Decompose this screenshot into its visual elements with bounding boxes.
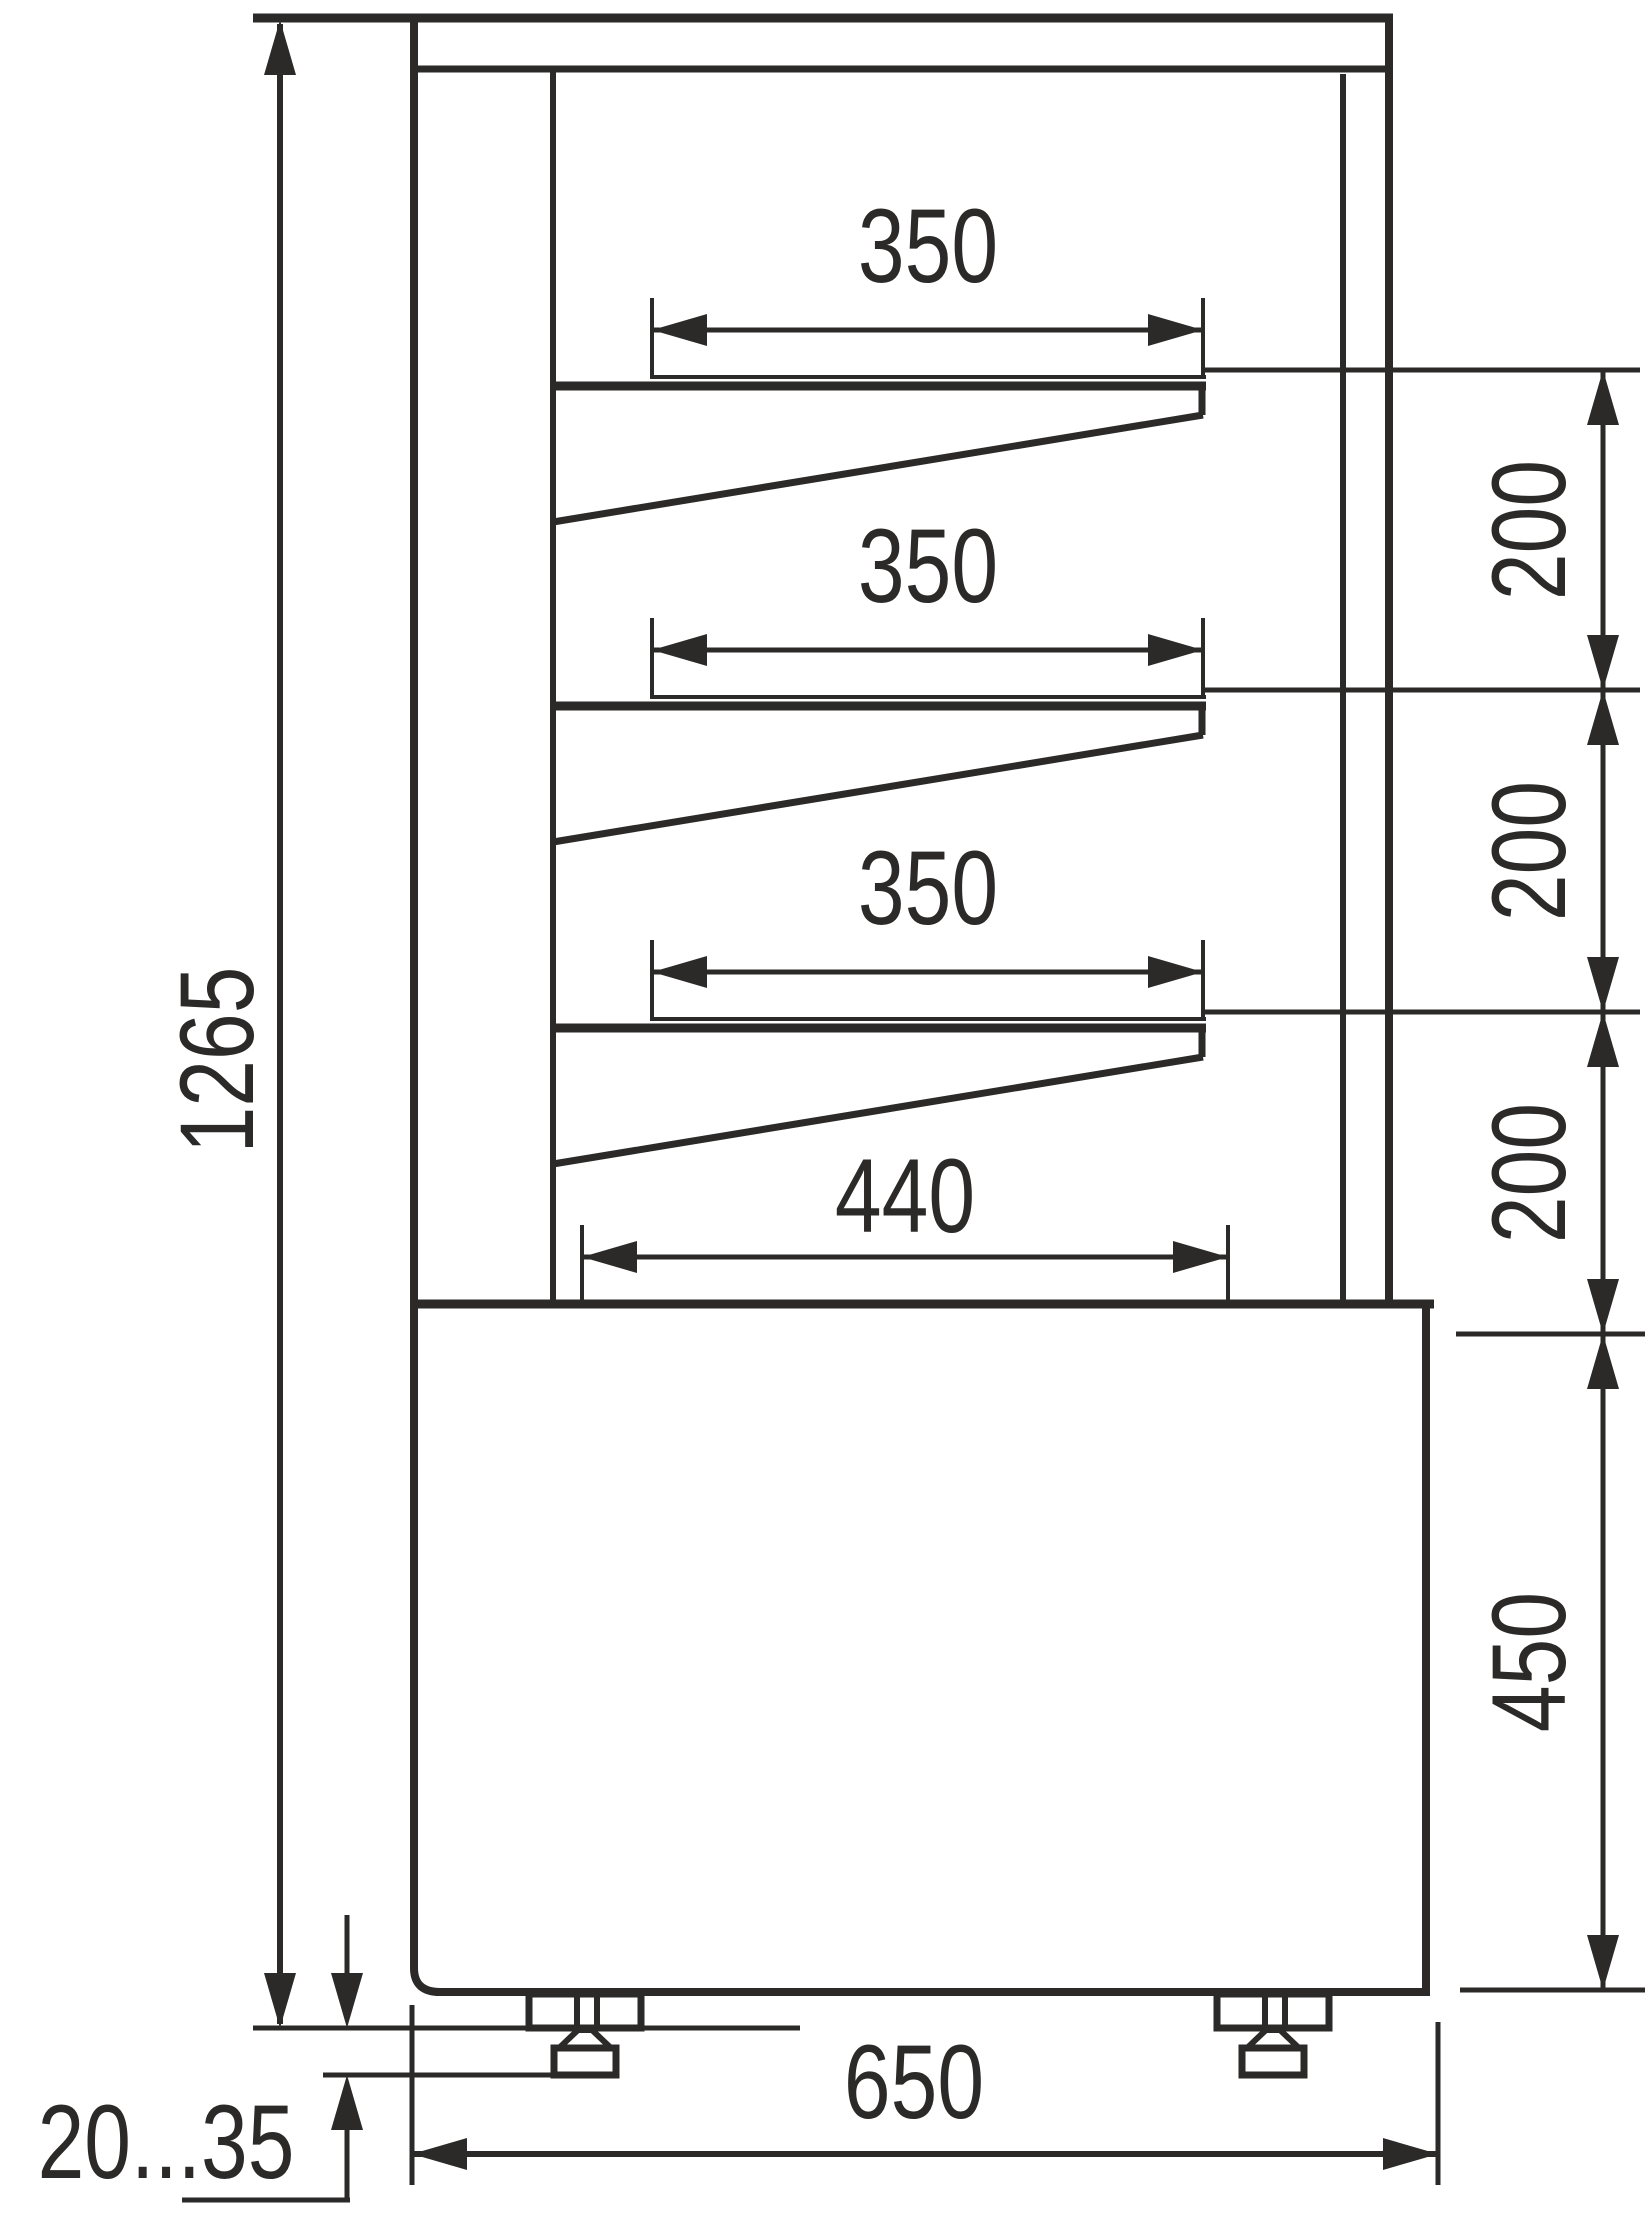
display-case-section-drawing: 1265 350 350 350 440: [0, 0, 1650, 2218]
dim-total-height-arrow-top: [264, 20, 296, 75]
dim-shelf-width-3-label: 350: [858, 830, 998, 947]
outer-shell-path: [414, 18, 1426, 1992]
dim-total-height-label: 1265: [159, 967, 276, 1154]
dim-deck-arrow-right: [1173, 1241, 1228, 1273]
shelf-2-bracket-slant: [553, 735, 1203, 842]
shelf-2: [553, 697, 1206, 842]
dim-shelf-3-arrow-right: [1148, 956, 1203, 988]
chain-arrow-4-down: [1587, 1279, 1619, 1334]
shelf-1: [553, 377, 1206, 522]
shelf-1-bracket-slant: [553, 415, 1203, 522]
dim-shelf-2-arrow-right: [1148, 634, 1203, 666]
left-foot-pad: [554, 2048, 616, 2075]
dim-shelf-width-1: 350: [652, 188, 1203, 379]
dim-shelf-1-arrow-right: [1148, 314, 1203, 346]
dim-shelf-2-arrow-left: [652, 634, 707, 666]
left-foot-stem: [529, 1994, 641, 2028]
right-foot-stem: [1217, 1994, 1329, 2028]
dim-foot-range-label: 20...35: [38, 2084, 295, 2201]
cabinet-outline: [253, 18, 1434, 1992]
dim-shelf-gap-3-label: 200: [1471, 1103, 1588, 1243]
technical-drawing: 1265 350 350 350 440: [0, 0, 1650, 2218]
dim-deck-width-label: 440: [835, 1138, 975, 1255]
dim-foot-arrow-up: [331, 2075, 363, 2130]
chain-arrow-1-up: [1587, 370, 1619, 425]
dim-shelf-1-arrow-left: [652, 314, 707, 346]
dim-deck-width: 440: [582, 1138, 1228, 1302]
dim-foot-range: 20...35: [38, 1915, 618, 2201]
dim-foot-arrow-down: [331, 1973, 363, 2028]
dim-depth-arrow-right: [1383, 2138, 1438, 2170]
dim-shelf-width-1-label: 350: [858, 188, 998, 305]
dim-total-height-arrow-bottom: [264, 1973, 296, 2028]
dim-shelf-width-3: 350: [652, 830, 1203, 1021]
chain-arrow-2-down: [1587, 635, 1619, 690]
right-foot: [1217, 1994, 1329, 2075]
dim-shelf-width-2-label: 350: [858, 508, 998, 625]
dim-shelf-width-2: 350: [652, 508, 1203, 699]
dim-shelf-3-arrow-left: [652, 956, 707, 988]
right-foot-pad: [1242, 2048, 1304, 2075]
chain-arrow-2-up: [1587, 690, 1619, 745]
chain-arrow-4-up: [1587, 1334, 1619, 1389]
dim-deck-arrow-left: [582, 1241, 637, 1273]
chain-arrow-3-down: [1587, 957, 1619, 1012]
dim-shelf-gap-1-label: 200: [1471, 460, 1588, 600]
left-foot: [529, 1994, 641, 2075]
dim-depth-arrow-left: [412, 2138, 467, 2170]
dim-shelf-gap-2-label: 200: [1471, 781, 1588, 921]
chain-arrow-3-up: [1587, 1012, 1619, 1067]
chain-arrow-5-down: [1587, 1935, 1619, 1990]
dim-overall-depth-label: 650: [844, 2024, 984, 2141]
dim-base-height-label: 450: [1471, 1592, 1588, 1732]
